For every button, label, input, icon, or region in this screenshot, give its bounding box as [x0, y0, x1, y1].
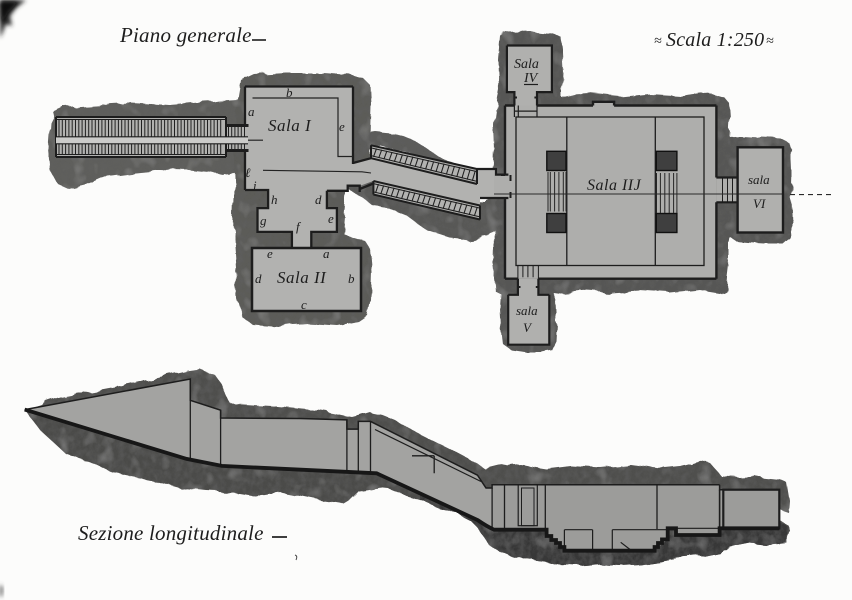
svg-text:VI: VI [753, 196, 766, 211]
svg-text:d: d [255, 271, 262, 286]
svg-text:Sala I: Sala I [268, 116, 312, 135]
svg-text:Piano generale: Piano generale [119, 23, 252, 47]
svg-text:Sala II: Sala II [277, 268, 327, 287]
svg-text:IV: IV [523, 71, 539, 86]
svg-text:Sezione longitudinale: Sezione longitudinale [78, 521, 264, 545]
svg-text:c: c [301, 297, 307, 312]
svg-text:a: a [248, 104, 255, 119]
svg-text:ℓ: ℓ [245, 165, 251, 180]
svg-text:sala: sala [516, 303, 538, 318]
svg-text:≈: ≈ [766, 34, 774, 49]
svg-text:d: d [315, 192, 322, 207]
svg-text:i: i [253, 178, 257, 193]
svg-text:e: e [267, 246, 273, 261]
svg-text:b: b [286, 85, 293, 100]
svg-text:g: g [260, 213, 267, 228]
svg-text:h: h [271, 192, 278, 207]
svg-text:e: e [328, 211, 334, 226]
svg-text:b: b [348, 271, 355, 286]
svg-text:Sala: Sala [514, 57, 539, 72]
svg-text:e: e [339, 119, 345, 134]
svg-text:Sala IIJ: Sala IIJ [587, 177, 642, 194]
svg-text:sala: sala [748, 172, 770, 187]
svg-text:a: a [323, 246, 330, 261]
svg-text:≈: ≈ [654, 34, 662, 49]
svg-text:Scala 1:250: Scala 1:250 [666, 29, 764, 51]
